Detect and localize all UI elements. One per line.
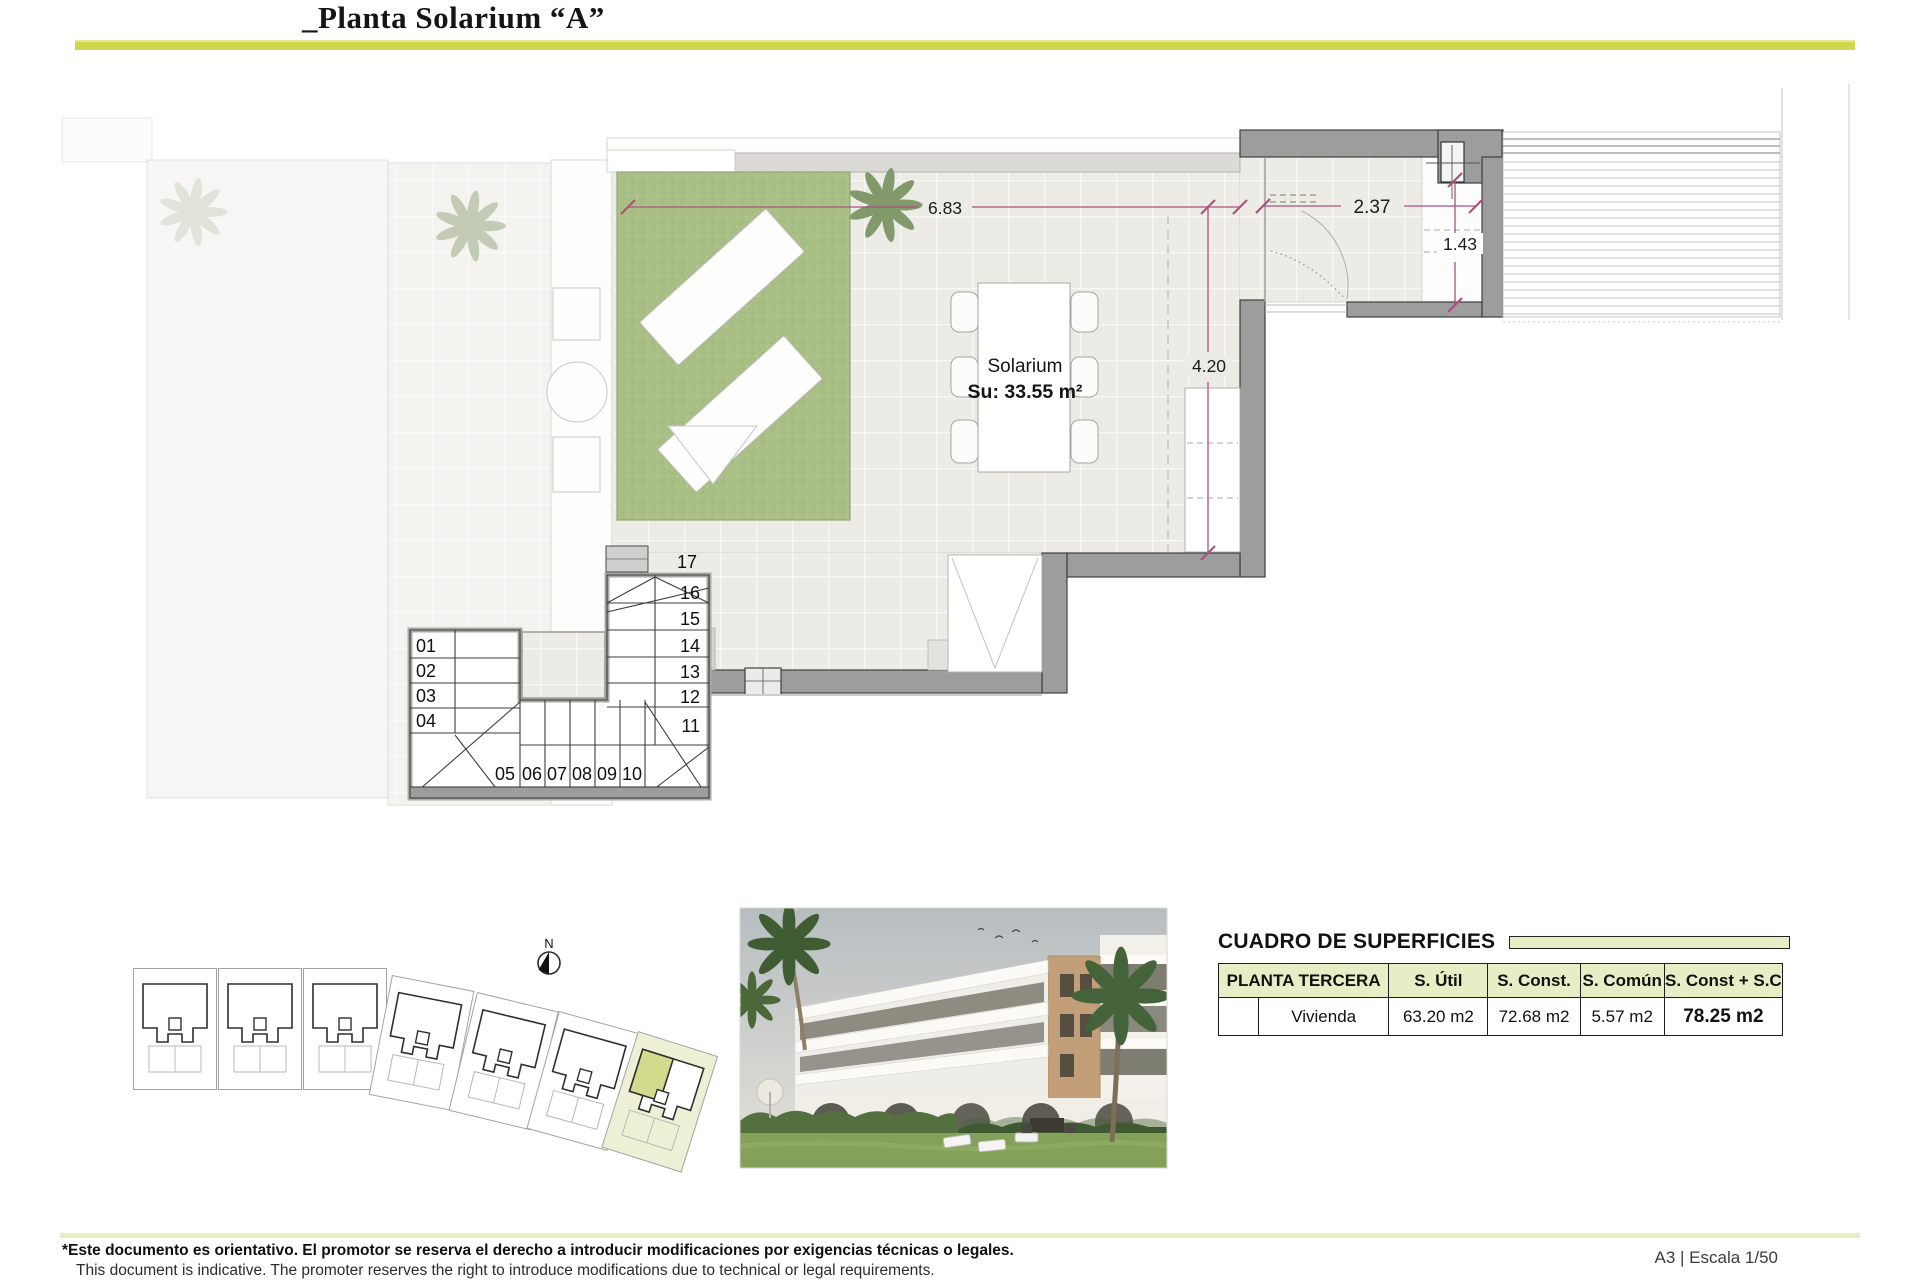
surfaces-table: PLANTA TERCERA S. Útil S. Const. S. Comú…	[1218, 963, 1783, 1036]
empty-cell	[1219, 998, 1259, 1036]
col-s-const: S. Const.	[1488, 964, 1580, 998]
s-util-value: 63.20 m2	[1389, 998, 1488, 1036]
col-s-total: S. Const + S.C	[1664, 964, 1782, 998]
pergola-louvers	[1503, 84, 1849, 322]
surfaces-header-row: PLANTA TERCERA S. Útil S. Const. S. Comú…	[1219, 964, 1783, 998]
dining-set	[951, 283, 1098, 472]
s-const-value: 72.68 m2	[1488, 998, 1580, 1036]
col-s-comun: S. Común	[1580, 964, 1664, 998]
sun-lounger	[1015, 1133, 1038, 1142]
floor-plan: Solarium Su: 33.55 m²	[0, 0, 1920, 900]
stair-number: 13	[680, 662, 700, 682]
chair	[951, 292, 978, 332]
stair-number: 04	[416, 711, 436, 731]
dim-storage-width: 2.37	[1354, 197, 1391, 218]
plan-sheet: _Planta Solarium “A”	[0, 0, 1920, 1280]
chair	[951, 420, 978, 463]
chair	[1071, 420, 1098, 463]
sheet-info: A3 | Escala 1/50	[1655, 1248, 1779, 1268]
chair	[1071, 292, 1098, 332]
sun-lounger	[978, 1139, 1006, 1152]
footer-divider	[60, 1233, 1860, 1238]
stair-number: 14	[680, 636, 700, 656]
stair-number: 10	[622, 764, 642, 784]
surfaces-panel: CUADRO DE SUPERFICIES PLANTA TERCERA S. …	[1218, 930, 1790, 1036]
dim-terrace-width: 6.83	[928, 198, 962, 218]
building-render	[723, 902, 1170, 1168]
stair-number: 15	[680, 609, 700, 629]
surfaces-title: CUADRO DE SUPERFICIES	[1218, 930, 1495, 954]
stair-number: 03	[416, 686, 436, 706]
dim-terrace-depth: 4.20	[1192, 356, 1226, 376]
dim-storage-depth: 1.43	[1443, 234, 1477, 254]
stair-number: 01	[416, 636, 436, 656]
stair-number: 05	[495, 764, 515, 784]
stair-number: 02	[416, 661, 436, 681]
stair-number: 09	[597, 764, 617, 784]
planter	[553, 437, 600, 492]
parapet	[607, 138, 1240, 172]
surfaces-data-row: Vivienda 63.20 m2 72.68 m2 5.57 m2 78.25…	[1219, 998, 1783, 1036]
dining-table	[978, 283, 1070, 472]
disclaimer-es: *Este documento es orientativo. El promo…	[62, 1242, 1014, 1260]
s-comun-value: 5.57 m2	[1580, 998, 1664, 1036]
col-s-util: S. Útil	[1389, 964, 1488, 998]
s-total-value: 78.25 m2	[1664, 998, 1782, 1036]
planter	[553, 288, 600, 340]
disclaimer-en: This document is indicative. The promote…	[76, 1262, 935, 1280]
unit-name: Vivienda	[1259, 998, 1389, 1036]
room-area-label: Su: 33.55 m²	[968, 381, 1083, 403]
stair-number: 06	[522, 764, 542, 784]
planter-round	[547, 362, 607, 422]
col-planta: PLANTA TERCERA	[1219, 964, 1389, 998]
stair-number: 08	[572, 764, 592, 784]
stair-number: 16	[680, 583, 700, 603]
skylight-box	[948, 555, 1042, 672]
north-arrow: N	[538, 936, 560, 974]
surfaces-title-bar	[1509, 936, 1790, 949]
stair-number: 11	[681, 716, 700, 736]
room-label: Solarium	[988, 356, 1063, 377]
stair-number: 07	[547, 764, 567, 784]
stair-number: 12	[680, 687, 700, 707]
site-plan: N	[134, 936, 718, 1172]
stair-number: 17	[677, 552, 697, 572]
north-label: N	[544, 936, 553, 951]
